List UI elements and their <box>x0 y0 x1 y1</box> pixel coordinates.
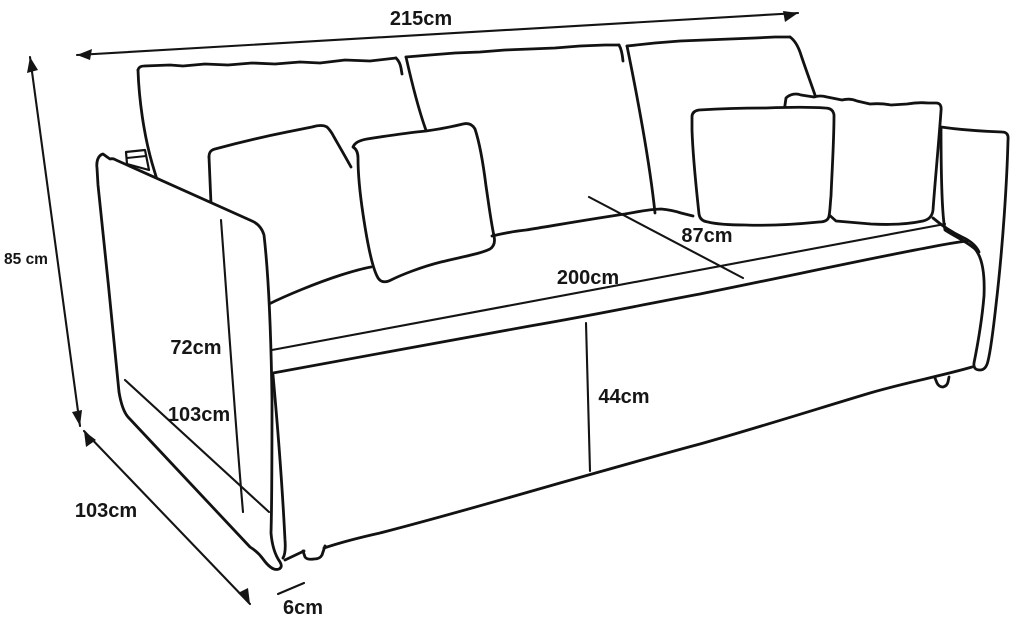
svg-text:215cm: 215cm <box>390 8 452 30</box>
svg-text:200cm: 200cm <box>557 267 619 289</box>
svg-text:87cm: 87cm <box>681 225 732 247</box>
svg-text:6cm: 6cm <box>283 597 323 619</box>
svg-text:85 cm: 85 cm <box>4 251 48 268</box>
svg-text:72cm: 72cm <box>170 337 221 359</box>
svg-text:103cm: 103cm <box>75 500 137 522</box>
svg-text:44cm: 44cm <box>598 386 649 408</box>
svg-text:103cm: 103cm <box>168 404 230 426</box>
